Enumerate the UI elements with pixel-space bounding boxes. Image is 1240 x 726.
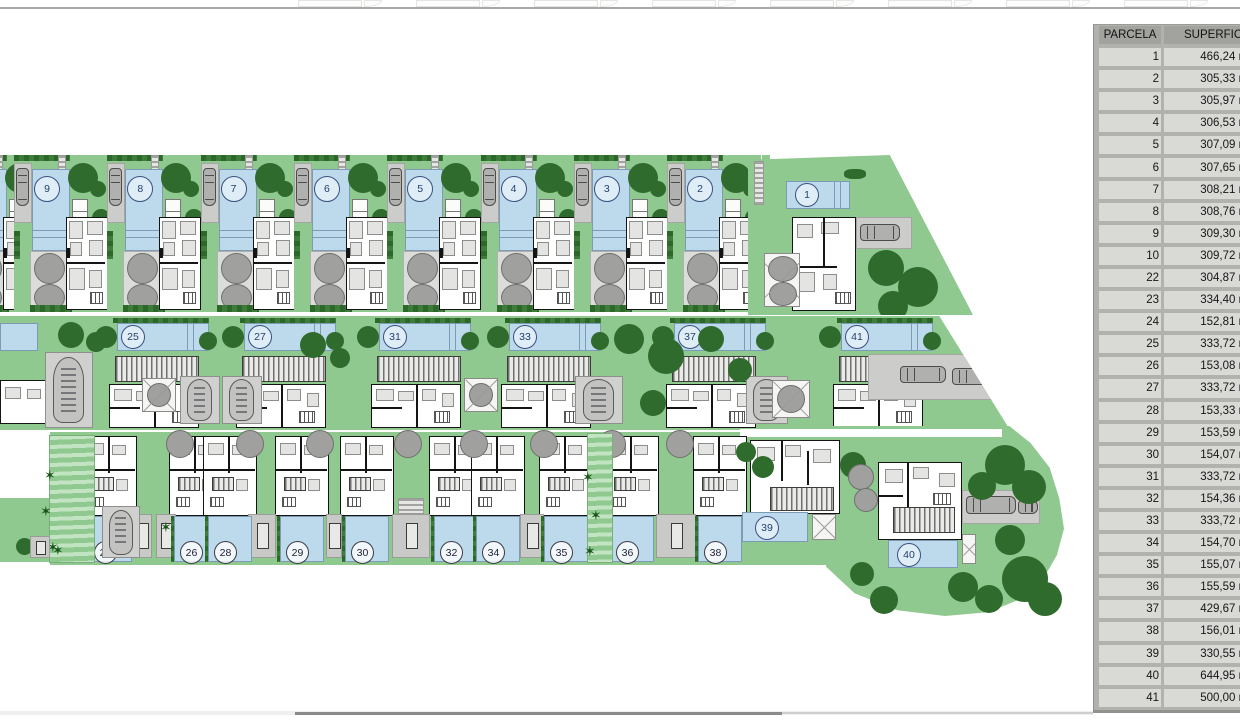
door-mark bbox=[254, 248, 257, 258]
neighbor-arc bbox=[1072, 0, 1090, 7]
parcel-number-badge: 5 bbox=[407, 176, 433, 202]
pool-lane-line bbox=[313, 230, 349, 238]
palm-tree-icon: ✶ bbox=[584, 544, 598, 558]
hedge-icon bbox=[431, 516, 434, 562]
parcela-cell: 35 bbox=[1099, 556, 1161, 574]
furniture-icon bbox=[717, 389, 731, 401]
ramp-shape bbox=[583, 379, 613, 420]
table-row: 4306,53 m² bbox=[1099, 114, 1240, 132]
furniture-icon bbox=[398, 391, 414, 401]
parcel-number-badge: 39 bbox=[755, 516, 779, 540]
wall-line bbox=[454, 437, 456, 473]
tree-icon bbox=[756, 332, 774, 350]
door-icon bbox=[36, 541, 46, 555]
door-mark bbox=[627, 248, 630, 258]
bathroom-grid bbox=[370, 292, 383, 304]
tree-icon bbox=[591, 332, 609, 350]
entry-porch bbox=[326, 514, 342, 558]
superficie-cell: 153,59 m² bbox=[1164, 424, 1240, 442]
tree-icon bbox=[648, 338, 684, 374]
parcel-number-badge: 28 bbox=[214, 541, 237, 564]
hedge-icon bbox=[342, 516, 345, 562]
furniture-icon bbox=[647, 221, 663, 235]
superficie-cell: 306,53 m² bbox=[1164, 114, 1240, 132]
wall-line bbox=[228, 437, 230, 473]
furniture-icon bbox=[236, 479, 248, 491]
parcela-cell: 1 bbox=[1099, 48, 1161, 66]
ramp-shape bbox=[229, 379, 254, 420]
wall-line bbox=[110, 407, 140, 409]
wall-line bbox=[341, 469, 392, 471]
palm-tree-icon: ✶ bbox=[40, 504, 54, 518]
tree-icon bbox=[300, 332, 326, 358]
bottom-road-line-light bbox=[782, 712, 1093, 714]
tree-icon bbox=[1012, 470, 1046, 504]
tree-icon bbox=[698, 326, 724, 352]
neighbor-outline bbox=[770, 0, 834, 7]
furniture-icon bbox=[726, 479, 738, 491]
bathroom-grid bbox=[557, 292, 570, 304]
parcel-number-badge: 41 bbox=[845, 325, 869, 349]
access-ramp bbox=[180, 376, 220, 424]
table-row: 28153,33 m² bbox=[1099, 402, 1240, 420]
parcela-cell: 4 bbox=[1099, 114, 1161, 132]
furniture-icon bbox=[504, 479, 516, 491]
tree-icon bbox=[277, 181, 293, 197]
pool: 32 bbox=[434, 516, 478, 562]
door-mark bbox=[440, 248, 443, 258]
furniture-icon bbox=[373, 479, 385, 491]
bathroom-grid bbox=[546, 497, 560, 507]
tree-icon bbox=[650, 181, 666, 197]
bathroom-grid bbox=[183, 292, 196, 304]
wall-line bbox=[254, 262, 292, 264]
hedge-icon bbox=[277, 516, 280, 562]
pool-lane-line bbox=[406, 230, 442, 238]
tower-shape bbox=[109, 510, 133, 555]
superficie-cell: 429,67 m² bbox=[1164, 600, 1240, 618]
villa-unit: 2 bbox=[667, 155, 762, 312]
house-floorplan bbox=[626, 217, 668, 310]
superficie-cell: 154,36 m² bbox=[1164, 490, 1240, 508]
villa-unit: 5 bbox=[387, 155, 482, 312]
ramp-shape bbox=[53, 357, 83, 424]
parcel-number-badge: 40 bbox=[897, 543, 921, 567]
tree-icon bbox=[728, 358, 752, 382]
wall-line bbox=[416, 385, 418, 427]
furniture-icon bbox=[69, 268, 85, 290]
furniture-icon bbox=[536, 268, 552, 290]
parcela-cell: 25 bbox=[1099, 335, 1161, 353]
parcela-cell: 41 bbox=[1099, 689, 1161, 707]
villa-unit: 4 bbox=[481, 155, 576, 312]
furniture-icon bbox=[813, 449, 831, 463]
car-icon bbox=[389, 168, 402, 206]
house-floorplan bbox=[346, 217, 388, 310]
parcela-cell: 3 bbox=[1099, 92, 1161, 110]
tree-icon bbox=[975, 585, 1003, 613]
door-icon bbox=[406, 523, 418, 549]
tree-icon bbox=[357, 326, 379, 348]
parcela-cell: 9 bbox=[1099, 225, 1161, 243]
villa-unit: 31 bbox=[357, 318, 477, 428]
wall-line bbox=[300, 437, 302, 473]
pool-lane-line bbox=[500, 230, 536, 238]
car-icon bbox=[669, 168, 682, 206]
furniture-icon bbox=[162, 221, 176, 239]
parcela-cell: 2 bbox=[1099, 70, 1161, 88]
furniture-icon bbox=[349, 221, 363, 239]
terrace-planter bbox=[962, 534, 976, 564]
entry-porch bbox=[392, 514, 430, 558]
canopy-tree-icon bbox=[854, 488, 878, 512]
tree-icon bbox=[614, 324, 644, 354]
roof-terrace-slats bbox=[377, 356, 461, 382]
tree-planter bbox=[772, 380, 810, 418]
bathroom-grid bbox=[650, 292, 663, 304]
table-body: 1466,24 m²2305,33 m²3305,97 m²4306,53 m²… bbox=[1099, 48, 1240, 707]
neighbor-outline bbox=[1006, 0, 1070, 7]
table-row: 6307,65 m² bbox=[1099, 158, 1240, 176]
parcela-cell: 5 bbox=[1099, 136, 1161, 154]
furniture-icon bbox=[649, 240, 663, 256]
tree-icon bbox=[819, 326, 841, 348]
furniture-icon bbox=[208, 443, 224, 455]
pool-lane-line bbox=[126, 230, 162, 238]
canopy-tree-icon bbox=[166, 430, 194, 458]
ramp-ladder-lines bbox=[591, 387, 605, 414]
parcela-cell: 6 bbox=[1099, 158, 1161, 176]
furniture-icon bbox=[112, 445, 126, 455]
table-row: 25333,72 m² bbox=[1099, 335, 1240, 353]
tree-icon bbox=[557, 181, 573, 197]
hedge-icon bbox=[107, 231, 113, 259]
canopy-tree-icon bbox=[394, 430, 422, 458]
furniture-icon bbox=[307, 393, 319, 407]
table-row: 24152,81 m² bbox=[1099, 313, 1240, 331]
parcela-cell: 37 bbox=[1099, 600, 1161, 618]
door-mark bbox=[67, 248, 70, 258]
hedge-icon bbox=[541, 516, 544, 562]
neighbor-outline bbox=[534, 0, 598, 7]
bathroom-grid bbox=[729, 411, 745, 423]
bathroom-grid bbox=[463, 292, 476, 304]
furniture-icon bbox=[89, 270, 102, 288]
wall-line bbox=[347, 262, 385, 264]
table-row: 35155,07 m² bbox=[1099, 556, 1240, 574]
villa-unit: 8 bbox=[107, 155, 202, 312]
parcel-number-badge: 30 bbox=[351, 541, 374, 564]
tree-icon bbox=[183, 181, 199, 197]
furniture-icon bbox=[556, 270, 569, 288]
table-row: 1466,24 m² bbox=[1099, 48, 1240, 66]
stair-slats bbox=[178, 477, 200, 491]
wall-line bbox=[711, 385, 713, 427]
furniture-icon bbox=[939, 473, 955, 487]
parcel-number-badge: 35 bbox=[550, 541, 573, 564]
neighbor-outline bbox=[652, 0, 716, 7]
furniture-icon bbox=[722, 445, 736, 455]
car-icon bbox=[860, 224, 900, 241]
tree-icon bbox=[487, 326, 509, 348]
car-icon bbox=[952, 368, 1000, 385]
parcela-cell: 32 bbox=[1099, 490, 1161, 508]
wall-line bbox=[823, 218, 825, 266]
terrace-planter bbox=[812, 514, 836, 540]
superficie-cell: 307,65 m² bbox=[1164, 158, 1240, 176]
neighbor-arc bbox=[1190, 0, 1208, 7]
pool-lane-line bbox=[220, 230, 256, 238]
table-row: 26153,08 m² bbox=[1099, 357, 1240, 375]
door-icon bbox=[329, 523, 341, 549]
wall-line bbox=[907, 463, 909, 507]
furniture-icon bbox=[182, 240, 196, 256]
ramp-ladder-lines bbox=[236, 387, 248, 414]
table-row: 2305,33 m² bbox=[1099, 70, 1240, 88]
parcel-number-badge: 1 bbox=[795, 183, 819, 207]
villa-unit: 3 bbox=[574, 155, 669, 312]
house-floorplan bbox=[439, 217, 481, 310]
pool-lane-line bbox=[187, 324, 194, 350]
furniture-icon bbox=[442, 221, 456, 239]
furniture-icon bbox=[345, 443, 361, 455]
furniture-icon bbox=[180, 221, 196, 235]
furniture-icon bbox=[182, 270, 195, 288]
car-icon bbox=[483, 168, 496, 206]
furniture-icon bbox=[462, 240, 476, 256]
wall-line bbox=[472, 469, 523, 471]
parcela-header: PARCELA bbox=[1099, 26, 1161, 44]
superficie-cell: 500,00 m² bbox=[1164, 689, 1240, 707]
pool-lane-line bbox=[449, 324, 456, 350]
bathroom-grid bbox=[436, 497, 450, 507]
hedge-icon bbox=[387, 231, 393, 259]
furniture-icon bbox=[634, 445, 648, 455]
furniture-icon bbox=[462, 270, 475, 288]
superficie-cell: 153,33 m² bbox=[1164, 402, 1240, 420]
tree-icon bbox=[463, 181, 479, 197]
canopy-tree-icon bbox=[469, 383, 493, 407]
furniture-icon bbox=[442, 268, 458, 290]
parcela-cell: 26 bbox=[1099, 357, 1161, 375]
house-floorplan bbox=[371, 384, 461, 428]
hedge-icon bbox=[473, 516, 476, 562]
superficie-cell: 466,24 m² bbox=[1164, 48, 1240, 66]
wall-line bbox=[67, 262, 105, 264]
table-header-row: PARCELA SUPERFICIE bbox=[1099, 26, 1240, 44]
tree-icon bbox=[461, 332, 479, 350]
canopy-tree-icon bbox=[460, 430, 488, 458]
tree-icon bbox=[90, 181, 106, 197]
furniture-icon bbox=[693, 391, 709, 401]
furniture-icon bbox=[369, 270, 382, 288]
wall-line bbox=[694, 469, 745, 471]
table-row: 27333,72 m² bbox=[1099, 379, 1240, 397]
stair-slats bbox=[702, 477, 724, 491]
pool-lane-line bbox=[911, 324, 918, 350]
neighbor-arc bbox=[364, 0, 382, 7]
pool: 39 bbox=[742, 512, 808, 542]
pool: 36 bbox=[610, 516, 654, 562]
furniture-icon bbox=[369, 445, 383, 455]
car-icon bbox=[966, 496, 1016, 514]
furniture-icon bbox=[528, 391, 544, 401]
canopy-tree-icon bbox=[594, 253, 625, 284]
furniture-icon bbox=[722, 268, 738, 290]
table-row: 7308,21 m² bbox=[1099, 181, 1240, 199]
ramp-ladder-lines bbox=[61, 368, 75, 412]
canopy-tree-icon bbox=[314, 253, 345, 284]
access-ramp bbox=[222, 376, 262, 424]
pool: 28 bbox=[208, 516, 252, 562]
wall-line bbox=[546, 385, 548, 427]
table-row: 37429,67 m² bbox=[1099, 600, 1240, 618]
furniture-icon bbox=[443, 242, 455, 256]
tree-planter bbox=[464, 378, 498, 412]
furniture-icon bbox=[698, 443, 714, 455]
superficie-header: SUPERFICIE bbox=[1164, 26, 1240, 44]
bathroom-grid bbox=[277, 292, 290, 304]
canopy-tree-icon bbox=[147, 383, 171, 407]
canopy-tree-icon bbox=[768, 256, 798, 282]
neighbor-arc bbox=[718, 0, 736, 7]
hedge-icon bbox=[695, 516, 698, 562]
table-row: 36155,59 m² bbox=[1099, 578, 1240, 596]
wall-line bbox=[781, 441, 783, 481]
palm-tree-icon: ✶ bbox=[582, 470, 596, 484]
pool: 29 bbox=[280, 516, 324, 562]
superficie-cell: 330,55 m² bbox=[1164, 645, 1240, 663]
table-row: 5307,09 m² bbox=[1099, 136, 1240, 154]
canopy-tree-icon bbox=[34, 253, 65, 284]
tree-icon bbox=[948, 572, 978, 602]
wall-line bbox=[879, 495, 903, 497]
stairs-icon bbox=[754, 161, 764, 205]
wall-line bbox=[440, 262, 478, 264]
table-row: 22304,87 m² bbox=[1099, 269, 1240, 287]
furniture-icon bbox=[350, 242, 362, 256]
furniture-icon bbox=[629, 268, 645, 290]
tree-icon bbox=[923, 332, 941, 350]
superficie-cell: 152,81 m² bbox=[1164, 313, 1240, 331]
door-icon bbox=[671, 523, 683, 549]
palm-tree-icon: ✶ bbox=[44, 468, 58, 482]
site-plan: 9876543212527313337412426282930323435363… bbox=[0, 0, 1240, 726]
house-floorplan bbox=[159, 217, 201, 310]
tree-icon bbox=[736, 442, 756, 462]
parcel-number-badge: 32 bbox=[440, 541, 463, 564]
furniture-icon bbox=[649, 270, 662, 288]
parcel-number-badge: 6 bbox=[314, 176, 340, 202]
parcel-number-badge: 27 bbox=[248, 325, 272, 349]
wall-line bbox=[834, 407, 864, 409]
stair-slats bbox=[284, 477, 306, 491]
parcela-cell: 8 bbox=[1099, 203, 1161, 221]
furniture-icon bbox=[276, 270, 289, 288]
superficie-cell: 305,33 m² bbox=[1164, 70, 1240, 88]
furniture-icon bbox=[276, 240, 290, 256]
tree-icon bbox=[968, 472, 996, 500]
parcel-number-badge: 38 bbox=[704, 541, 727, 564]
table-row: 9309,30 m² bbox=[1099, 225, 1240, 243]
bathroom-grid bbox=[210, 497, 224, 507]
house-floorplan bbox=[792, 217, 856, 311]
furniture-icon bbox=[27, 389, 41, 399]
parcela-cell: 40 bbox=[1099, 667, 1161, 685]
bathroom-grid bbox=[347, 497, 361, 507]
parcela-cell: 36 bbox=[1099, 578, 1161, 596]
site-plan-page: { "plan": { "top_row": ["9","8","7","6",… bbox=[0, 0, 1240, 726]
pool-lane-line bbox=[686, 230, 722, 238]
hedge-icon bbox=[294, 231, 300, 259]
bathroom-grid bbox=[478, 497, 492, 507]
table-row: 30154,07 m² bbox=[1099, 446, 1240, 464]
top-boundary-line bbox=[0, 7, 1240, 9]
furniture-icon bbox=[671, 389, 689, 401]
furniture-icon bbox=[422, 389, 436, 401]
parcel-number-badge: 7 bbox=[221, 176, 247, 202]
canopy-tree-icon bbox=[687, 253, 718, 284]
parcela-cell: 22 bbox=[1099, 269, 1161, 287]
tree-icon bbox=[870, 586, 898, 614]
neighbor-outline bbox=[888, 0, 952, 7]
parcel-number-badge: 9 bbox=[34, 176, 60, 202]
canopy-tree-icon bbox=[221, 253, 252, 284]
hedge-icon bbox=[201, 231, 207, 259]
furniture-icon bbox=[823, 274, 837, 290]
pool: 35 bbox=[544, 516, 588, 562]
table-row: 41500,00 m² bbox=[1099, 689, 1240, 707]
table-row: 23334,40 m² bbox=[1099, 291, 1240, 309]
furniture-icon bbox=[536, 221, 550, 239]
superficie-cell: 305,97 m² bbox=[1164, 92, 1240, 110]
furniture-icon bbox=[552, 389, 566, 401]
furniture-icon bbox=[162, 268, 178, 290]
furniture-icon bbox=[500, 445, 514, 455]
table-row: 10309,72 m² bbox=[1099, 247, 1240, 265]
wall-line bbox=[564, 437, 566, 473]
furniture-icon bbox=[256, 221, 270, 239]
superficie-cell: 156,01 m² bbox=[1164, 622, 1240, 640]
parcela-cell: 7 bbox=[1099, 181, 1161, 199]
parcela-cell: 38 bbox=[1099, 622, 1161, 640]
pool-lane-line bbox=[579, 324, 586, 350]
stair-slats bbox=[548, 477, 570, 491]
bathroom-grid bbox=[299, 411, 315, 423]
furniture-icon bbox=[506, 389, 524, 401]
furniture-icon bbox=[913, 467, 929, 479]
wall-line bbox=[807, 451, 809, 485]
furniture-icon bbox=[287, 389, 301, 401]
table-row: 8308,76 m² bbox=[1099, 203, 1240, 221]
hedge-icon bbox=[205, 516, 208, 562]
stair-slats bbox=[438, 477, 460, 491]
furniture-icon bbox=[274, 221, 290, 235]
bathroom-grid bbox=[612, 497, 626, 507]
superficie-cell: 308,76 m² bbox=[1164, 203, 1240, 221]
furniture-icon bbox=[114, 389, 132, 401]
tree-planter bbox=[142, 378, 176, 412]
furniture-icon bbox=[838, 389, 856, 401]
road-strip bbox=[740, 429, 1002, 437]
table-row: 38156,01 m² bbox=[1099, 622, 1240, 640]
tree-icon bbox=[86, 332, 106, 352]
tree-icon bbox=[58, 322, 84, 348]
tree-icon bbox=[370, 181, 386, 197]
tree-icon bbox=[330, 348, 350, 368]
pool: 34 bbox=[476, 516, 520, 562]
house-floorplan bbox=[0, 380, 46, 424]
